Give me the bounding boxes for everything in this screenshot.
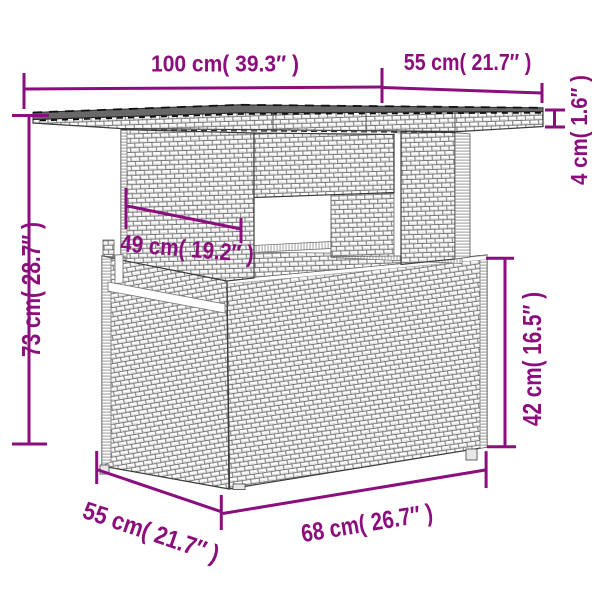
svg-text:73 cm( 28.7″ ): 73 cm( 28.7″ ) [16, 222, 46, 357]
svg-text:4 cm( 1.6″ ): 4 cm( 1.6″ ) [566, 75, 592, 185]
svg-text:100 cm( 39.3″ ): 100 cm( 39.3″ ) [151, 51, 299, 77]
svg-text:42 cm( 16.5″ ): 42 cm( 16.5″ ) [517, 292, 547, 426]
svg-text:55 cm( 21.7″ ): 55 cm( 21.7″ ) [404, 49, 532, 75]
